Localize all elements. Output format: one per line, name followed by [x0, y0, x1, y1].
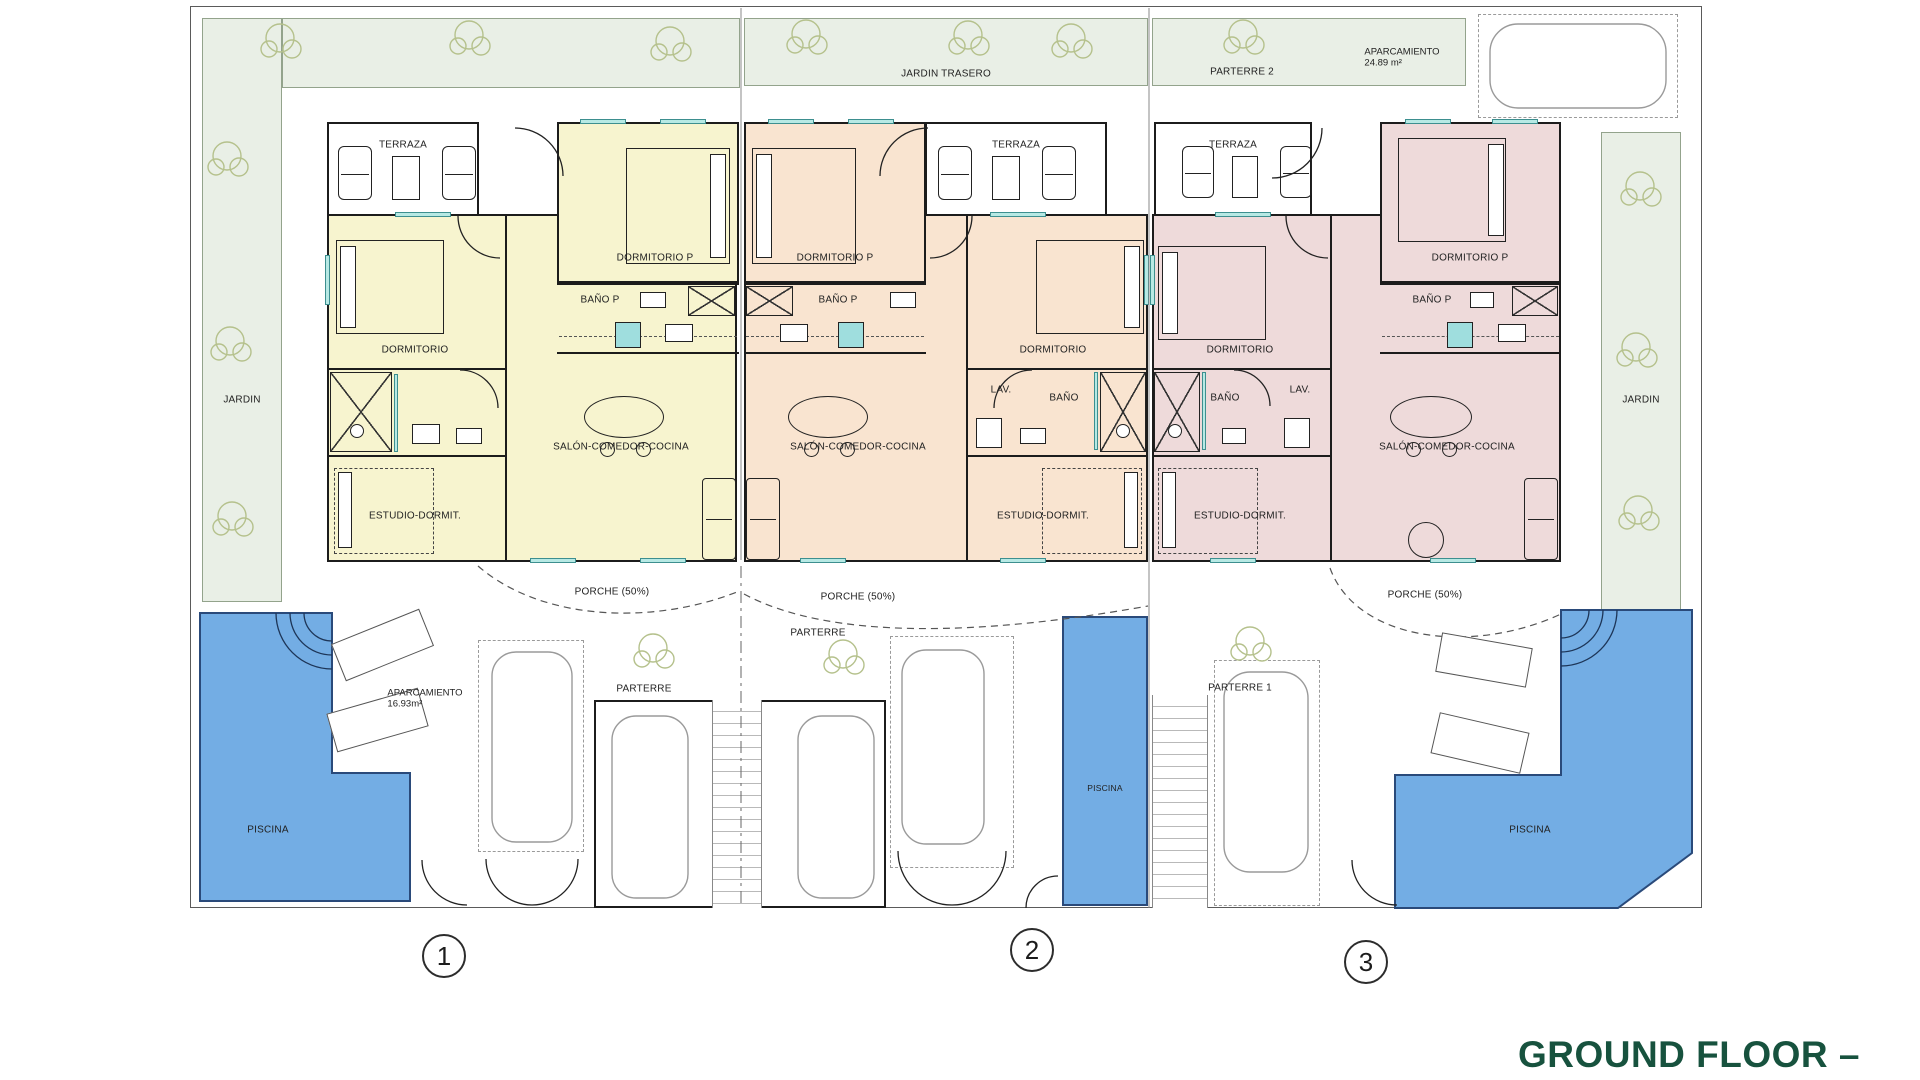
- plan-linework: [0, 0, 1920, 1080]
- label-piscina-u1: PISCINA: [247, 825, 288, 836]
- floor-plan: JARDIN TRASERO PARTERRE 2 APARCAMIENTO 2…: [0, 0, 1920, 1080]
- label-porche-u3: PORCHE (50%): [1388, 590, 1463, 601]
- label-estudio-u3: ESTUDIO-DORMIT.: [1194, 511, 1286, 522]
- label-estudio-u1: ESTUDIO-DORMIT.: [369, 511, 461, 522]
- label-aparcamiento-u1-area: 16.93m²: [387, 699, 462, 710]
- label-dormitorio-p-u1: DORMITORIO P: [617, 253, 694, 264]
- label-bano-u2: BAÑO: [1049, 393, 1078, 404]
- unit-number-1-text: 1: [437, 941, 451, 972]
- label-salon-u3: SALÓN-COMEDOR-COCINA: [1379, 442, 1515, 453]
- label-aparcamiento-u1: APARCAMIENTO: [387, 688, 462, 699]
- label-porche-u1: PORCHE (50%): [575, 587, 650, 598]
- label-lav-u2: LAV.: [991, 385, 1012, 396]
- porch-boundary: [478, 566, 1561, 637]
- label-lav-u3: LAV.: [1290, 385, 1311, 396]
- label-bano-p-u2: BAÑO P: [819, 295, 858, 306]
- label-dormitorio-u3: DORMITORIO: [1207, 345, 1274, 356]
- label-parterre-u3: PARTERRE 1: [1208, 683, 1272, 694]
- unit-number-1: 1: [422, 934, 466, 978]
- label-estudio-u2: ESTUDIO-DORMIT.: [997, 511, 1089, 522]
- label-parterre-2: PARTERRE 2: [1210, 67, 1274, 78]
- label-parterre-u1: PARTERRE: [616, 684, 671, 695]
- label-dormitorio-u1: DORMITORIO: [382, 345, 449, 356]
- label-dormitorio-p-u3: DORMITORIO P: [1432, 253, 1509, 264]
- pool-unit2: [1063, 617, 1147, 905]
- label-jardin-right: JARDIN: [1622, 395, 1659, 406]
- label-parterre-u2: PARTERRE: [790, 628, 845, 639]
- unit-number-2-text: 2: [1025, 935, 1039, 966]
- unit-number-3: 3: [1344, 940, 1388, 984]
- label-jardin-left: JARDIN: [223, 395, 260, 406]
- label-aparcamiento-top-area: 24.89 m²: [1364, 58, 1439, 69]
- unit-number-3-text: 3: [1359, 947, 1373, 978]
- label-bano-u3: BAÑO: [1210, 393, 1239, 404]
- label-dormitorio-u2: DORMITORIO: [1020, 345, 1087, 356]
- label-salon-u1: SALÓN-COMEDOR-COCINA: [553, 442, 689, 453]
- label-bano-p-u1: BAÑO P: [581, 295, 620, 306]
- label-piscina-u2: PISCINA: [1087, 783, 1122, 793]
- label-dormitorio-p-u2: DORMITORIO P: [797, 253, 874, 264]
- label-terraza-u3: TERRAZA: [1209, 140, 1257, 151]
- label-aparcamiento-top: APARCAMIENTO: [1364, 47, 1439, 58]
- plan-title: GROUND FLOOR – PLANTA BAJA: [1368, 1034, 1860, 1080]
- label-piscina-u3: PISCINA: [1509, 825, 1550, 836]
- unit-number-2: 2: [1010, 928, 1054, 972]
- label-terraza-u2: TERRAZA: [992, 140, 1040, 151]
- label-porche-u2: PORCHE (50%): [821, 592, 896, 603]
- label-jardin-trasero: JARDIN TRASERO: [901, 69, 991, 80]
- label-salon-u2: SALÓN-COMEDOR-COCINA: [790, 442, 926, 453]
- label-terraza-u1: TERRAZA: [379, 140, 427, 151]
- label-bano-p-u3: BAÑO P: [1413, 295, 1452, 306]
